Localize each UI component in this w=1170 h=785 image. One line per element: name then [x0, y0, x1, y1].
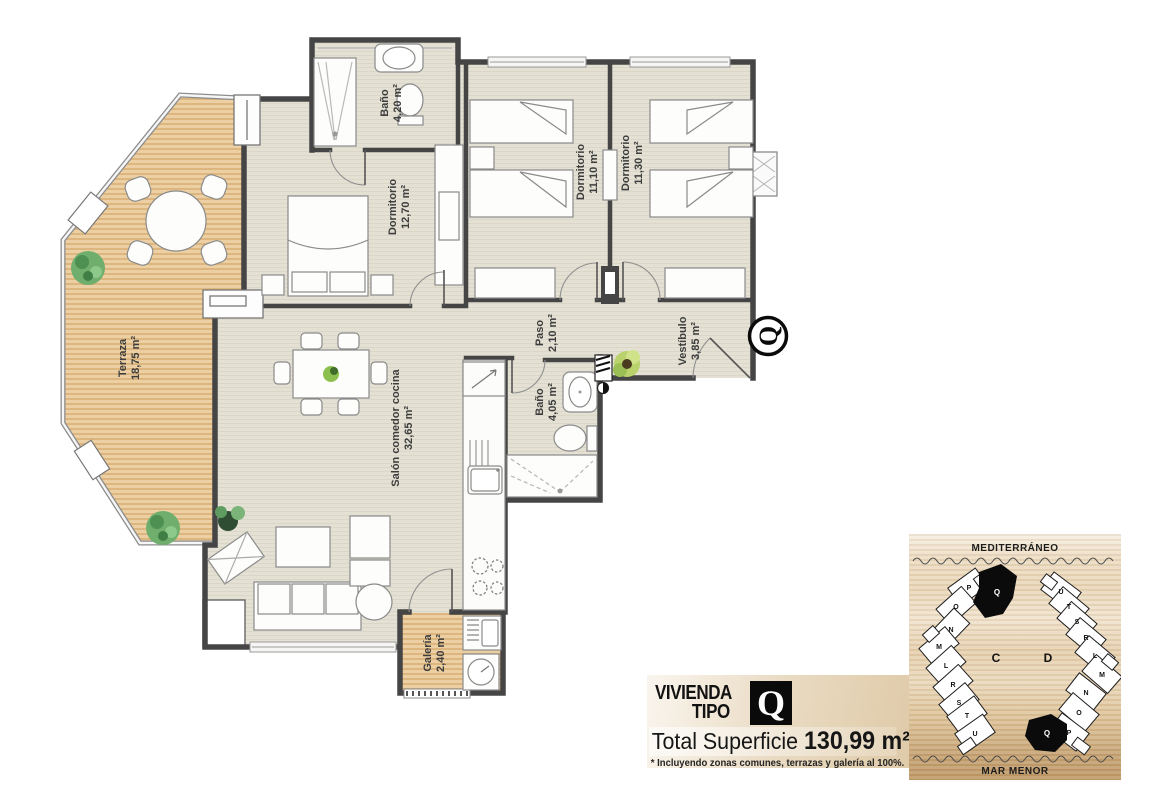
svg-text:18,75 m²: 18,75 m² [130, 336, 142, 380]
svg-text:T: T [1067, 604, 1072, 611]
svg-text:Salón comedor cocina: Salón comedor cocina [390, 368, 402, 486]
room-label-dormitorio3: Dormitorio 11,30 m² [620, 135, 645, 192]
svg-text:O: O [953, 604, 959, 611]
bedroom3-furniture [650, 100, 753, 298]
total-surface-label: Total Superficie [652, 728, 798, 754]
site-plan-svg: MEDITERRÁNEO P Q O N M L R S T U [909, 534, 1121, 780]
svg-text:Q: Q [1044, 729, 1050, 738]
svg-text:Dormitorio: Dormitorio [620, 135, 632, 192]
svg-text:R: R [1083, 635, 1088, 642]
svg-text:T: T [965, 713, 970, 720]
svg-text:U: U [972, 731, 977, 738]
svg-text:N: N [948, 627, 953, 634]
wave-top [913, 558, 1113, 564]
svg-text:Dormitorio: Dormitorio [387, 179, 399, 236]
palm-plant [71, 251, 105, 285]
room-label-banio2: Baño 4,05 m² [534, 383, 559, 421]
svg-text:4,20 m²: 4,20 m² [392, 84, 404, 122]
bench [475, 268, 555, 298]
svg-text:11,30 m²: 11,30 m² [633, 141, 645, 185]
svg-text:Q: Q [994, 588, 1000, 597]
side-window-bay [751, 152, 777, 196]
exterior-corner-block [203, 600, 245, 647]
toilet [554, 425, 586, 451]
svg-text:12,70 m²: 12,70 m² [400, 185, 412, 229]
svg-text:R: R [950, 682, 955, 689]
svg-text:Terraza: Terraza [117, 338, 129, 377]
room-label-galeria: Galería 2,40 m² [422, 633, 447, 671]
nightstand [262, 275, 284, 295]
svg-text:32,65 m²: 32,65 m² [403, 406, 415, 450]
gallery-railing [404, 689, 470, 698]
svg-text:3,85 m²: 3,85 m² [690, 322, 702, 360]
svg-text:N: N [1083, 690, 1088, 697]
block-d-label: D [1044, 651, 1053, 665]
svg-text:Baño: Baño [379, 89, 391, 117]
room-label-vestibulo: Vestíbulo 3,85 m² [677, 316, 702, 365]
svg-text:Vestíbulo: Vestíbulo [677, 316, 689, 365]
page: Baño 4,20 m² Dormitorio 12,70 m² Dormito… [0, 0, 1170, 785]
info-box-title-row: VIVIENDA TIPO Q [647, 675, 915, 726]
svg-text:2,10 m²: 2,10 m² [547, 314, 559, 352]
svg-text:P: P [967, 585, 972, 592]
total-surface-line: Total Superficie 130,99 m² [649, 727, 896, 756]
site-plan: MEDITERRÁNEO P Q O N M L R S T U [909, 534, 1121, 780]
svg-text:Baño: Baño [534, 388, 546, 416]
armchair [350, 516, 390, 558]
room-label-dormitorio1: Dormitorio 12,70 m² [387, 179, 412, 236]
svg-text:Dormitorio: Dormitorio [575, 144, 587, 201]
svg-text:S: S [957, 700, 962, 707]
svg-text:Paso: Paso [534, 320, 546, 347]
bathtub [507, 455, 597, 497]
svg-text:P: P [1067, 730, 1072, 737]
svg-text:Galería: Galería [422, 633, 434, 671]
svg-text:11,10 m²: 11,10 m² [588, 150, 600, 194]
svg-text:2,40 m²: 2,40 m² [435, 634, 447, 672]
electrical-panel [595, 355, 612, 394]
bench [665, 268, 745, 298]
footnote: * Incluyendo zonas comunes, terrazas y g… [647, 756, 902, 769]
type-letter-box: Q [750, 681, 792, 725]
svg-text:M: M [936, 644, 942, 651]
coffee-table [276, 527, 330, 567]
table-plant [323, 366, 339, 382]
svg-text:O: O [1076, 710, 1082, 717]
unit-type-badge: Q [750, 318, 787, 355]
svg-text:4,05 m²: 4,05 m² [547, 383, 559, 421]
sea-top-label: MEDITERRÁNEO [971, 541, 1058, 554]
svg-text:U: U [1058, 589, 1063, 596]
nightstand [470, 147, 494, 169]
room-label-banio1: Baño 4,20 m² [379, 84, 404, 122]
block-c-label: C [992, 651, 1001, 665]
info-box: VIVIENDA TIPO Q Total Superficie 130,99 … [647, 675, 915, 768]
floor-plan: Baño 4,20 m² Dormitorio 12,70 m² Dormito… [0, 0, 830, 745]
svg-text:Q: Q [754, 326, 783, 346]
room-label-dormitorio2: Dormitorio 11,10 m² [575, 144, 600, 201]
svg-text:M: M [1099, 672, 1105, 679]
total-surface-value: 130,99 m² [804, 727, 910, 755]
palm-plant [146, 511, 180, 545]
nightstand [371, 275, 393, 295]
svg-text:L: L [1093, 653, 1098, 660]
vivienda-tipo-title: VIVIENDA TIPO [655, 684, 730, 722]
round-table [146, 191, 206, 251]
title-line2: TIPO [655, 703, 730, 722]
kitchen-fixtures [463, 360, 505, 610]
sea-bottom-label: MAR MENOR [981, 766, 1049, 777]
svg-text:S: S [1075, 619, 1080, 626]
side-table [356, 584, 392, 620]
building-d: U T S R L M N O Q P D [1025, 572, 1121, 755]
nightstand [729, 147, 753, 169]
wave-bottom [913, 756, 1113, 762]
building-c: P Q O N M L R S T U C [919, 564, 1017, 755]
room-label-terraza: Terraza 18,75 m² [117, 336, 142, 380]
svg-text:L: L [944, 663, 949, 670]
